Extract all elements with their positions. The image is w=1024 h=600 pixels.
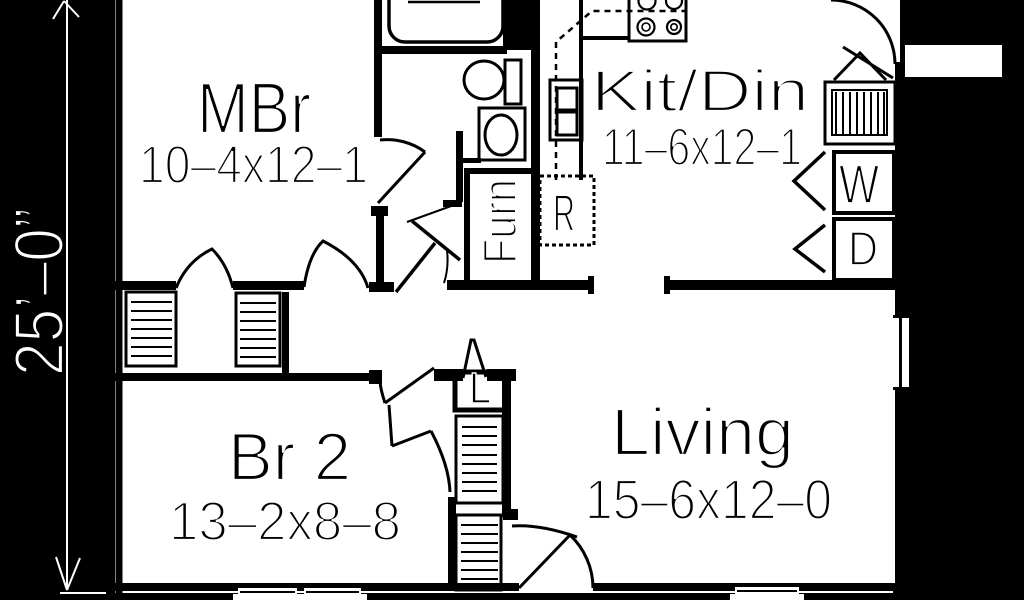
svg-text:L: L xyxy=(469,364,491,413)
svg-text:11–6x12–1: 11–6x12–1 xyxy=(602,118,802,177)
svg-text:Furn: Furn xyxy=(473,179,526,264)
svg-text:Br 2: Br 2 xyxy=(228,419,351,495)
svg-text:13–2x8–8: 13–2x8–8 xyxy=(169,490,401,552)
svg-text:R: R xyxy=(553,185,575,243)
svg-text:Kit/Din: Kit/Din xyxy=(591,59,809,124)
svg-text:25’–0”: 25’–0” xyxy=(0,208,78,376)
svg-text:10–4x12–1: 10–4x12–1 xyxy=(139,135,368,195)
svg-text:W: W xyxy=(839,153,879,215)
svg-text:Living: Living xyxy=(611,395,794,470)
svg-text:15–6x12–0: 15–6x12–0 xyxy=(585,468,832,532)
svg-text:D: D xyxy=(848,223,878,276)
